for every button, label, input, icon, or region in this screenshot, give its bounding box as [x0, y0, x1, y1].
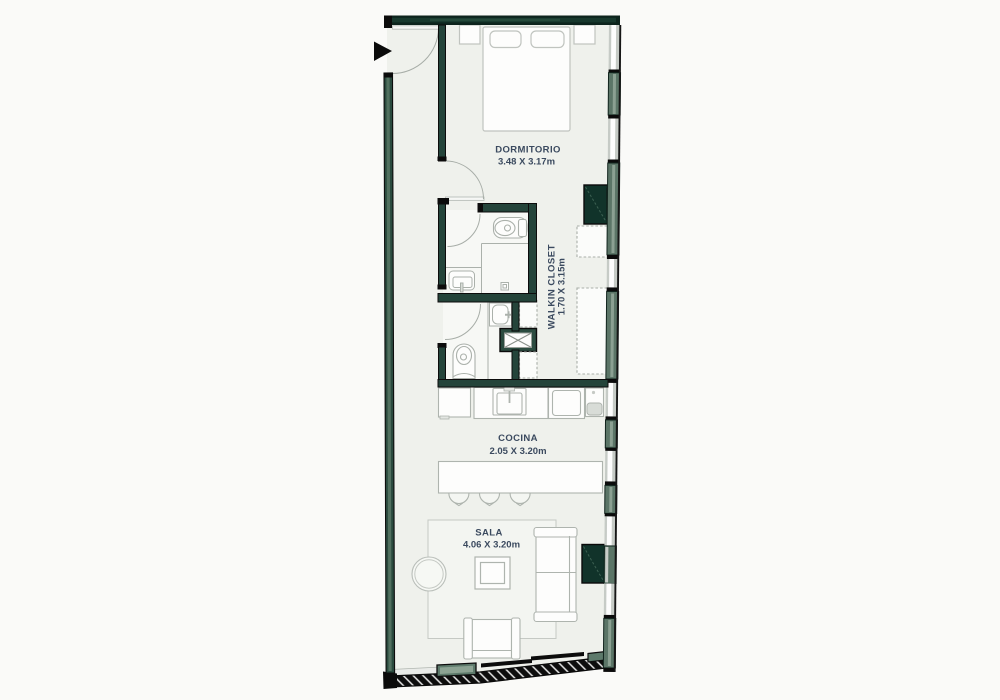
svg-text:4.06 X 3.20m: 4.06 X 3.20m [463, 540, 520, 551]
svg-text:3.48 X 3.17m: 3.48 X 3.17m [498, 157, 555, 168]
svg-text:DORMITORIO: DORMITORIO [495, 145, 561, 156]
svg-text:1.70 X 3.15m: 1.70 X 3.15m [556, 258, 567, 315]
svg-text:2.05 X 3.20m: 2.05 X 3.20m [489, 446, 546, 457]
svg-text:COCINA: COCINA [498, 433, 538, 444]
svg-text:SALA: SALA [475, 528, 502, 539]
